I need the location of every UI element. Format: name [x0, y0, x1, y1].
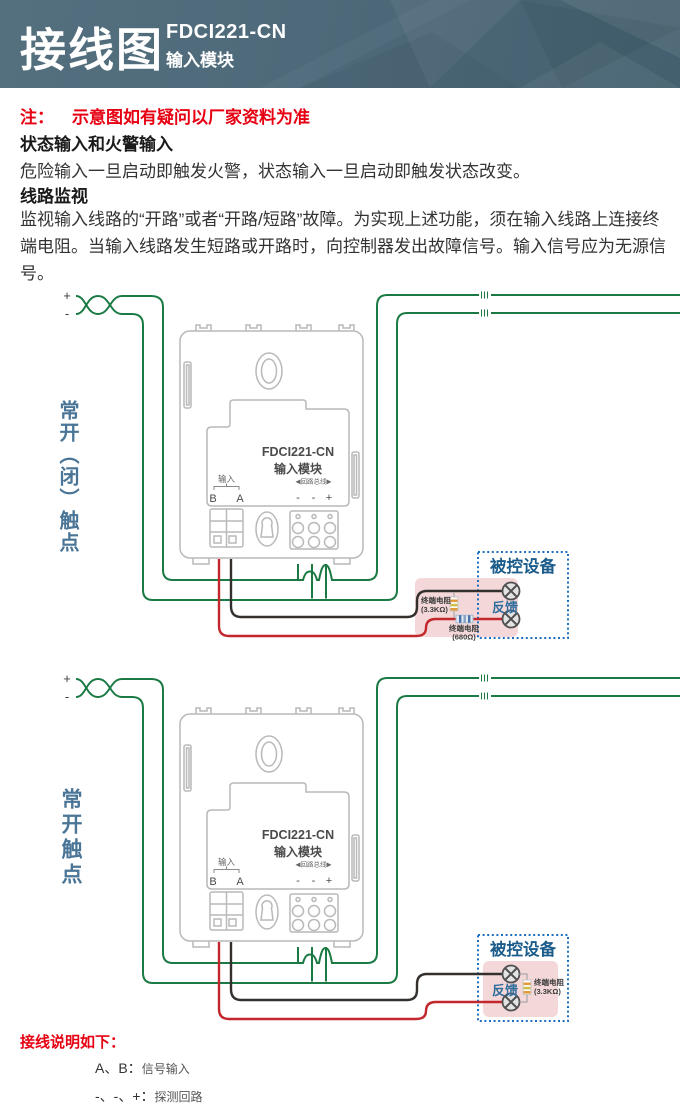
legend-item-ab: A、B：信号输入 — [95, 1058, 190, 1078]
d2-resistor1-value-label: (3.3KΩ) — [534, 987, 561, 996]
terminal-resistor-3k3 — [450, 597, 458, 611]
resistor1-name-label: 终端电阻 — [420, 595, 451, 605]
terminal-resistor-3k3-d2 — [523, 980, 531, 995]
terminal-resistor-680 — [456, 615, 473, 623]
legend-term-loop: -、-、+： — [95, 1088, 155, 1104]
resistor2-value-label: (680Ω) — [452, 633, 476, 642]
wiring-diagram-canvas: FDCI221-CN 输入模块 输入 B A ◀回路总线▶ - - + — [0, 280, 680, 1050]
legend-title: 接线说明如下： — [20, 1031, 125, 1052]
section2-body: 监视输入线路的“开路”或者“开路/短路”故障。为实现上述功能，须在输入线路上连接… — [20, 206, 670, 287]
legend-desc-loop: 探测回路 — [155, 1090, 203, 1104]
section1-title: 状态输入和火警输入 — [20, 130, 173, 155]
page-title: 接线图 — [20, 14, 164, 80]
legend-term-ab: A、B： — [95, 1060, 142, 1076]
header-product-name: 输入模块 — [166, 46, 234, 71]
header-model-number: FDCI221-CN — [166, 21, 287, 44]
note-text: 示意图如有疑问以厂家资料为准 — [72, 108, 310, 127]
circuit-instance-1 — [63, 288, 680, 638]
page-header: 接线图 FDCI221-CN 输入模块 — [0, 0, 680, 88]
section2-title: 线路监视 — [20, 182, 88, 207]
legend-desc-ab: 信号输入 — [142, 1062, 190, 1076]
section1-body: 危险输入一旦启动即触发火警，状态输入一旦启动即触发状态改变。 — [20, 157, 530, 182]
d2-resistor1-name-label: 终端电阻 — [533, 977, 564, 987]
legend-item-loop: -、-、+：探测回路 — [95, 1086, 203, 1106]
note-label: 注： — [20, 108, 54, 127]
resistor1-value-label: (3.3KΩ) — [421, 605, 448, 614]
circuit-instance-2 — [63, 671, 680, 1021]
resistor2-name-label: 终端电阻 — [448, 623, 479, 633]
module-instance-2 — [180, 708, 363, 947]
wiring-diagram-page: 接线图 FDCI221-CN 输入模块 注：示意图如有疑问以厂家资料为准 状态输… — [0, 0, 680, 1109]
note-line: 注：示意图如有疑问以厂家资料为准 — [20, 103, 310, 128]
module-instance-1 — [180, 325, 363, 564]
